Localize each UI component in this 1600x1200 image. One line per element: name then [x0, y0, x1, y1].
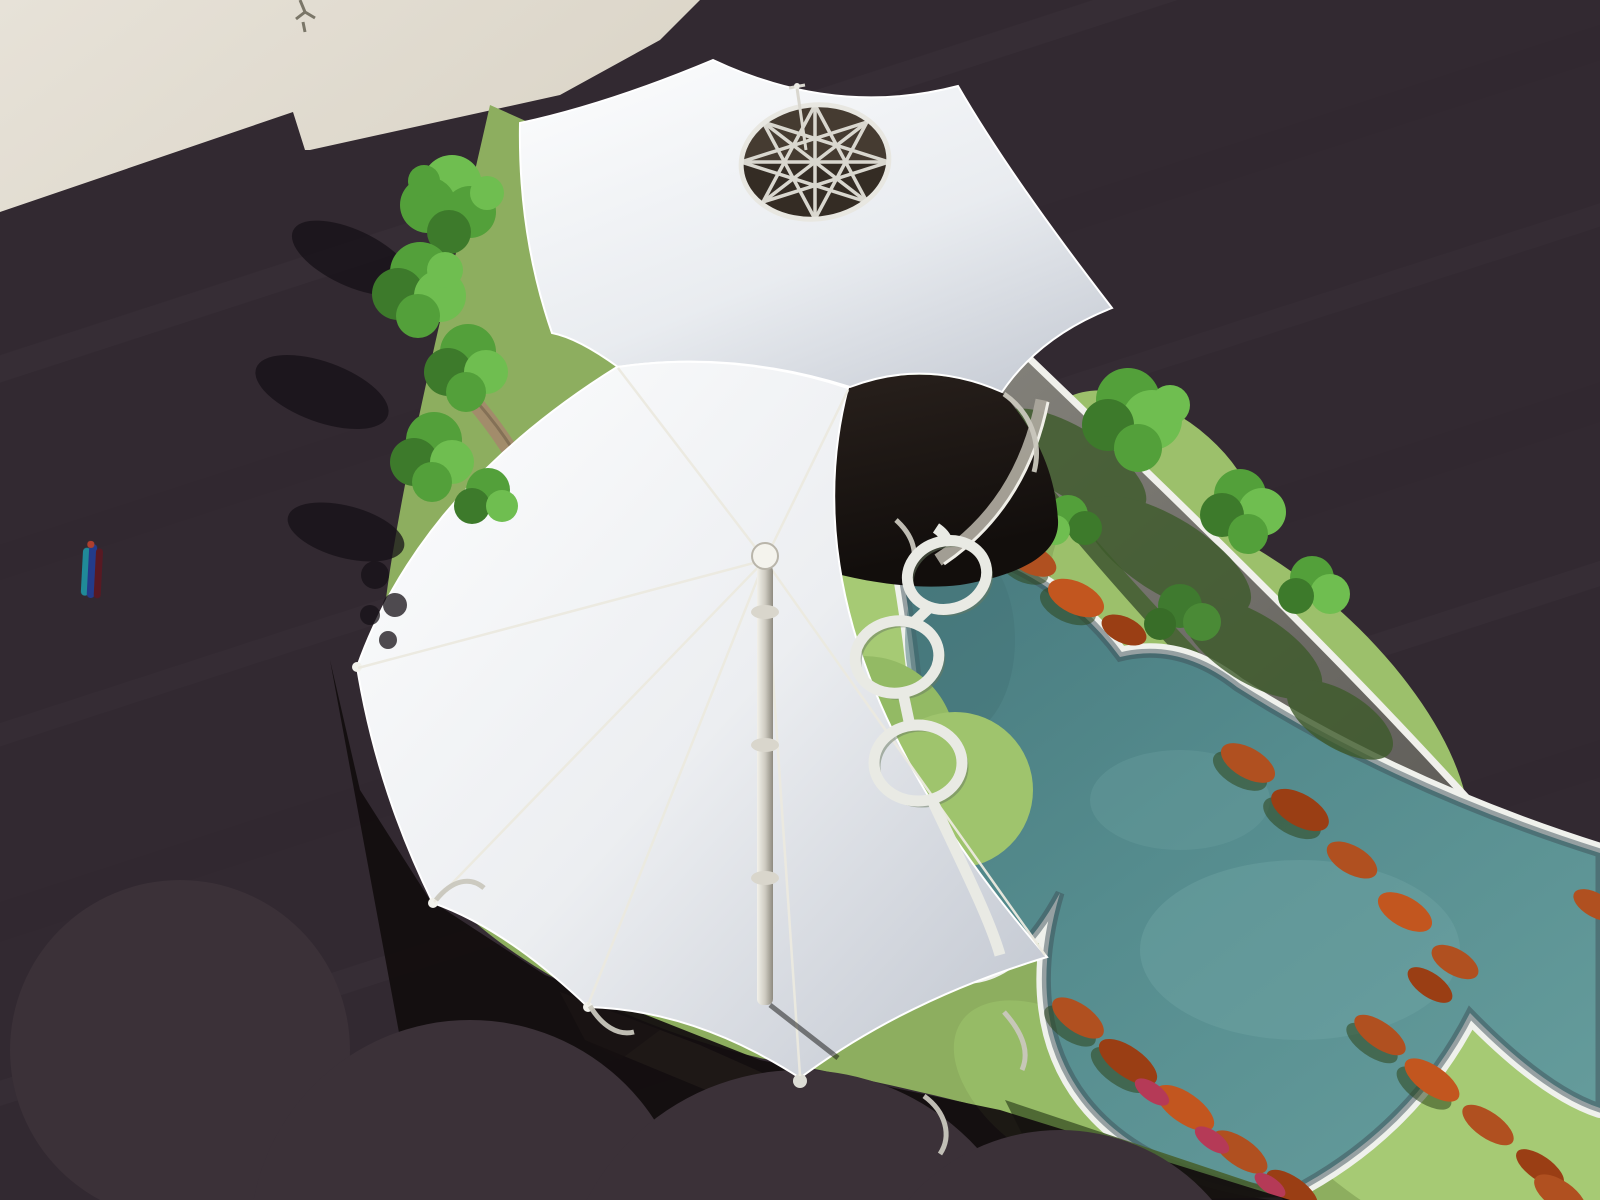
render-viewport: Aerial 3D architectural rendering: white…	[0, 0, 1600, 1200]
mast-pole	[757, 565, 773, 1005]
landscape-render: Aerial 3D architectural rendering: white…	[0, 0, 1600, 1200]
crown-mast-finial	[794, 83, 800, 89]
water-highlight	[1140, 860, 1460, 1040]
mast-collar	[751, 605, 779, 619]
pedestrian-figure	[81, 541, 104, 599]
mast-collar	[751, 871, 779, 885]
mast-collar	[751, 738, 779, 752]
mast-finial-ball	[752, 543, 778, 569]
anchor-pad	[793, 1074, 807, 1088]
